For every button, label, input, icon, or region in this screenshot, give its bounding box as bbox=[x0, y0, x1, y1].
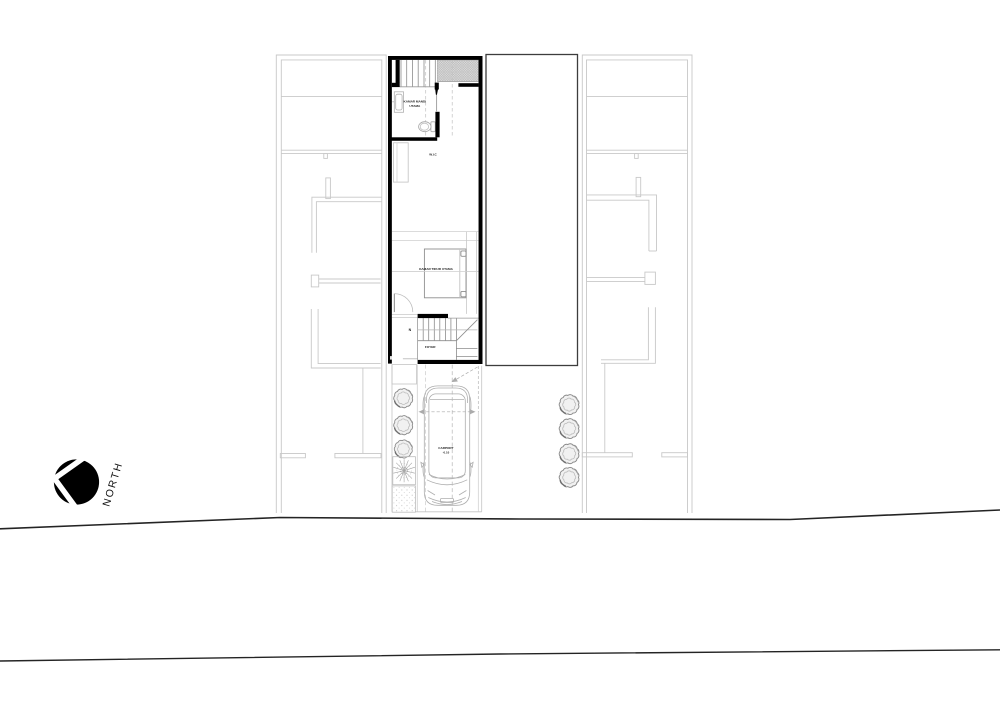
svg-text:N: N bbox=[409, 328, 412, 332]
svg-text:FOYER: FOYER bbox=[425, 345, 436, 349]
svg-text:W.I.C: W.I.C bbox=[429, 152, 437, 156]
svg-text:KAMAR TIDUR UTAMA: KAMAR TIDUR UTAMA bbox=[419, 267, 453, 271]
svg-text:UTAMA: UTAMA bbox=[409, 104, 421, 108]
svg-text:-0.10: -0.10 bbox=[443, 450, 450, 454]
svg-text:CARPORT: CARPORT bbox=[438, 446, 453, 450]
